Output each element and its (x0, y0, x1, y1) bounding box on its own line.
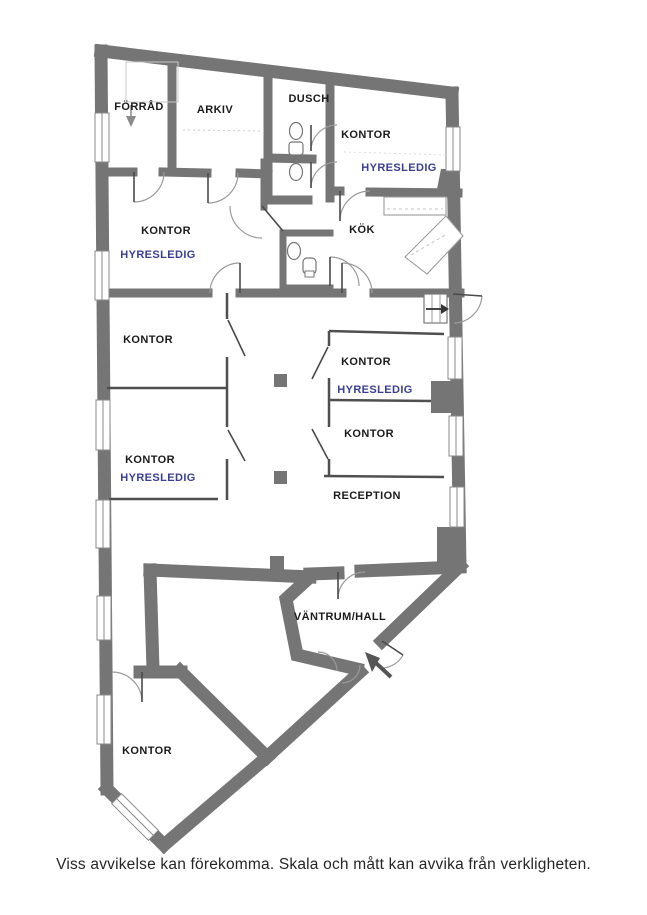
wall-se-diagonal (164, 757, 267, 845)
room-label-forrad: FÖRRÅD (114, 100, 163, 113)
door-leaf (228, 430, 245, 461)
wall-courtyard-left (150, 570, 153, 669)
partition (329, 331, 444, 334)
partition-walls (107, 293, 444, 500)
kitchen-counter (384, 197, 446, 215)
wall-h2 (163, 172, 207, 173)
wall-dusch-divider (268, 158, 312, 159)
toilet-tank (305, 271, 314, 277)
room-label-kontor-w2: KONTOR (125, 454, 175, 466)
dashed-line (183, 130, 264, 131)
disclaimer-text: Viss avvikelse kan förekomma. Skala och … (0, 856, 647, 874)
floor-plan-drawing: FÖRRÅD ARKIV DUSCH KONTOR HYRESLEDIG KON… (0, 0, 647, 915)
wall-block (437, 527, 460, 568)
room-label-kok: KÖK (349, 223, 375, 236)
pillar (274, 471, 287, 484)
room-label-kontor-s: KONTOR (122, 745, 172, 757)
room-label-vantrum: VÄNTRUM/HALL (294, 610, 386, 623)
sink-icon (290, 123, 303, 140)
floor-plan-page: FÖRRÅD ARKIV DUSCH KONTOR HYRESLEDIG KON… (0, 0, 647, 915)
status-label-kontor-ne: HYRESLEDIG (361, 162, 437, 174)
wall-reception-south-left (310, 573, 338, 574)
room-label-arkiv: ARKIV (197, 104, 233, 116)
partition (324, 476, 444, 477)
window (96, 400, 110, 450)
wall-courtyard-top (150, 570, 310, 577)
door-arc (383, 655, 403, 668)
room-label-kontor-w1: KONTOR (123, 334, 173, 346)
toilet-icon (289, 142, 303, 155)
window (450, 487, 464, 527)
door-arc (230, 206, 262, 238)
window (96, 500, 110, 548)
dashed-line (344, 152, 447, 155)
room-label-kontor-e2: KONTOR (344, 428, 394, 440)
door-leaf (262, 206, 283, 231)
door-arc (134, 172, 164, 202)
wall-vantrum-west (286, 577, 357, 669)
door-leaf (228, 320, 245, 356)
status-label-kontor-e1: HYRESLEDIG (337, 384, 413, 396)
window (448, 337, 462, 379)
door-leaf (312, 347, 328, 379)
window (97, 596, 111, 640)
room-label-kontor-e1: KONTOR (341, 356, 391, 368)
partition (329, 400, 432, 401)
window (446, 127, 460, 171)
window (449, 416, 463, 456)
wall-vantrum-east (382, 566, 460, 641)
room-label-kontor-ne: KONTOR (341, 129, 391, 141)
room-label-reception: RECEPTION (333, 490, 401, 502)
entrance-arrow-icon (365, 652, 391, 677)
window (95, 251, 109, 300)
door-leaf (382, 641, 403, 655)
wall-top (101, 51, 452, 93)
door-arc (330, 257, 359, 286)
wall-block (431, 381, 460, 413)
status-label-kontor-nw: HYRESLEDIG (120, 249, 196, 261)
room-label-kontor-nw: KONTOR (141, 225, 191, 237)
status-label-kontor-w2: HYRESLEDIG (120, 472, 196, 484)
door-arc (208, 173, 238, 203)
sink-icon (288, 243, 301, 260)
window (97, 695, 111, 744)
wall-pentagon-ne (180, 671, 267, 757)
sink-icon (290, 164, 303, 181)
room-label-dusch: DUSCH (288, 93, 329, 105)
pillar (274, 374, 287, 387)
window (95, 113, 109, 162)
window (112, 794, 159, 841)
wall-bump (270, 556, 284, 570)
door-leaf (312, 429, 328, 459)
wall-building-se (267, 672, 360, 757)
